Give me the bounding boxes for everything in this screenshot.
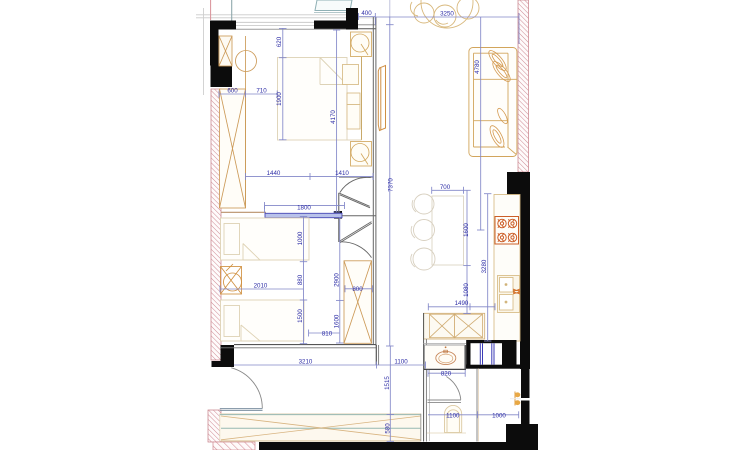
svg-text:1000: 1000 <box>297 231 304 245</box>
svg-text:2900: 2900 <box>333 273 340 287</box>
svg-text:4780: 4780 <box>474 60 481 74</box>
svg-text:3280: 3280 <box>481 259 488 273</box>
svg-text:1490: 1490 <box>455 300 469 307</box>
svg-text:1600: 1600 <box>333 314 340 328</box>
svg-text:1800: 1800 <box>297 204 311 211</box>
svg-text:700: 700 <box>440 184 451 191</box>
svg-text:1410: 1410 <box>335 170 349 177</box>
svg-text:810: 810 <box>322 330 333 337</box>
svg-text:1500: 1500 <box>297 309 304 323</box>
svg-text:3250: 3250 <box>440 10 454 17</box>
svg-text:4170: 4170 <box>330 110 337 124</box>
svg-text:800: 800 <box>352 286 363 293</box>
svg-text:1440: 1440 <box>267 170 281 177</box>
svg-text:1515: 1515 <box>384 376 391 390</box>
svg-text:400: 400 <box>361 10 372 17</box>
svg-text:1000: 1000 <box>492 412 506 419</box>
svg-text:710: 710 <box>256 87 267 94</box>
svg-text:1080: 1080 <box>463 283 470 297</box>
svg-text:820: 820 <box>441 371 452 378</box>
svg-text:1100: 1100 <box>394 358 408 365</box>
svg-text:2010: 2010 <box>254 282 268 289</box>
svg-text:620: 620 <box>276 36 283 47</box>
svg-text:880: 880 <box>297 274 304 285</box>
svg-text:1100: 1100 <box>446 412 460 419</box>
svg-text:1600: 1600 <box>463 223 470 237</box>
svg-text:1900: 1900 <box>276 92 283 106</box>
svg-text:600: 600 <box>227 87 238 94</box>
svg-text:3210: 3210 <box>299 358 313 365</box>
svg-text:580: 580 <box>384 423 391 434</box>
svg-text:7370: 7370 <box>387 178 394 192</box>
